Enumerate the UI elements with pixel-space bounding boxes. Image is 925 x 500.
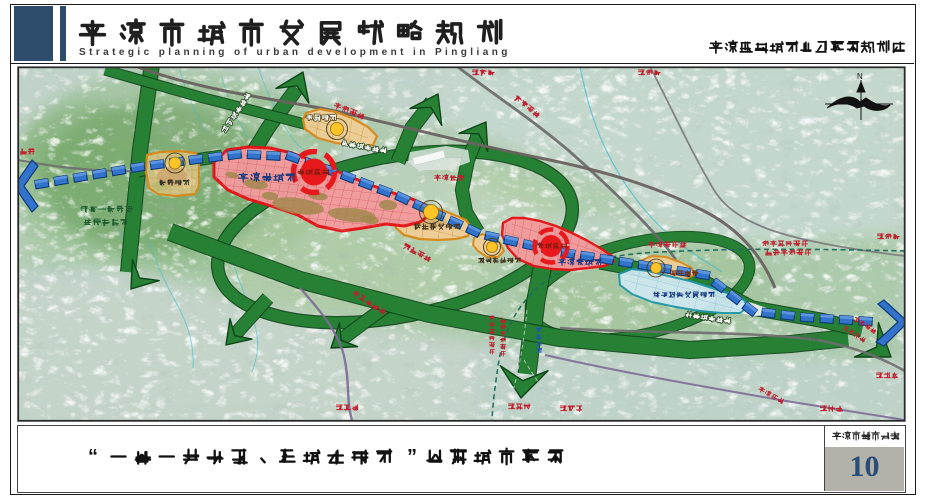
svg-text:”: ” <box>407 446 417 468</box>
svg-text:“: “ <box>88 446 98 468</box>
